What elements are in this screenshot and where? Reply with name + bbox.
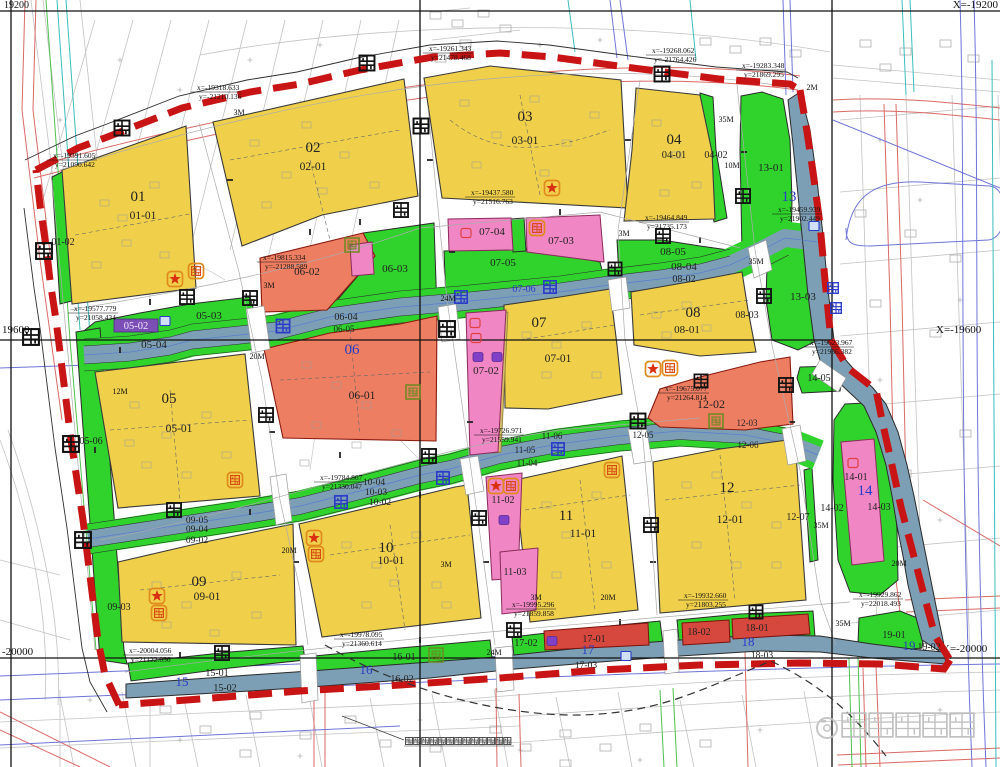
svg-text:x=-19815.334: x=-19815.334 — [263, 253, 306, 262]
svg-text:15: 15 — [176, 674, 189, 689]
svg-text:y=21264.814: y=21264.814 — [667, 393, 707, 402]
svg-text:x=-19577.779: x=-19577.779 — [74, 304, 117, 313]
svg-text:19-01: 19-01 — [882, 630, 905, 641]
svg-text:y=21859.858: y=21859.858 — [514, 609, 554, 618]
svg-text:05-03: 05-03 — [196, 310, 222, 322]
svg-text:08-02: 08-02 — [672, 274, 695, 285]
svg-text:03-01: 03-01 — [512, 135, 539, 147]
svg-text:09: 09 — [192, 574, 207, 590]
svg-text:15-02: 15-02 — [213, 683, 236, 694]
svg-text:x=-19932.660: x=-19932.660 — [684, 591, 727, 600]
svg-text:01: 01 — [131, 189, 146, 205]
svg-text:x=-20004.056: x=-20004.056 — [129, 646, 172, 655]
svg-text:02: 02 — [306, 140, 321, 156]
svg-text:06: 06 — [345, 342, 361, 358]
svg-text:y=-21764.426: y=-21764.426 — [654, 55, 697, 64]
svg-text:17-03: 17-03 — [575, 661, 597, 671]
svg-text:11-06: 11-06 — [542, 431, 563, 441]
svg-text:06-05: 06-05 — [334, 324, 355, 334]
svg-text:12-06: 12-06 — [738, 440, 759, 450]
svg-text:10-04: 10-04 — [363, 478, 385, 488]
svg-text:08-01: 08-01 — [674, 324, 700, 336]
svg-text:01-01: 01-01 — [130, 210, 157, 222]
svg-text:07-01: 07-01 — [545, 353, 572, 365]
svg-text:04: 04 — [667, 132, 683, 148]
svg-text:11-02: 11-02 — [492, 495, 515, 506]
svg-text:24M: 24M — [440, 294, 455, 303]
svg-text:11-01: 11-01 — [570, 528, 597, 540]
svg-text:09-03: 09-03 — [107, 602, 130, 613]
svg-text:y=21869.295: y=21869.295 — [744, 70, 784, 79]
svg-text:14-03: 14-03 — [867, 502, 890, 513]
svg-text:X=-19600: X=-19600 — [936, 324, 982, 336]
svg-text:18-02: 18-02 — [687, 627, 710, 638]
svg-text:07-05: 07-05 — [490, 257, 516, 269]
svg-text:y=21330.047: y=21330.047 — [322, 482, 362, 491]
svg-text:y=21516.763: y=21516.763 — [473, 197, 513, 206]
svg-text:3M: 3M — [440, 560, 451, 569]
svg-text:y=22018.493: y=22018.493 — [861, 599, 901, 608]
svg-text:19200: 19200 — [4, 0, 29, 11]
svg-text:09-04: 09-04 — [186, 525, 208, 535]
svg-text:17-01: 17-01 — [582, 634, 605, 645]
svg-text:3M: 3M — [233, 108, 244, 117]
svg-text:08-04: 08-04 — [671, 261, 697, 273]
svg-text:06-04: 06-04 — [334, 312, 357, 323]
svg-text:x=-19318.633: x=-19318.633 — [197, 83, 240, 92]
svg-text:x=-19929.862: x=-19929.862 — [859, 590, 902, 599]
svg-text:y=21936.382: y=21936.382 — [812, 347, 852, 356]
svg-text:24M: 24M — [486, 648, 501, 657]
svg-text:12-07: 12-07 — [786, 512, 809, 523]
svg-text:2M: 2M — [806, 83, 817, 92]
svg-text:10: 10 — [379, 540, 394, 556]
svg-text:y=21122.036: y=21122.036 — [131, 655, 171, 664]
svg-text:12M: 12M — [112, 387, 127, 396]
svg-text:12-01: 12-01 — [717, 514, 744, 526]
svg-text:3M: 3M — [530, 593, 541, 602]
svg-text:20M: 20M — [249, 352, 264, 361]
svg-text:10-03: 10-03 — [365, 488, 387, 498]
svg-text:18-03: 18-03 — [751, 651, 773, 661]
svg-text:y=21058.434: y=21058.434 — [76, 313, 116, 322]
svg-text:X=-19200: X=-19200 — [953, 0, 999, 11]
svg-text:06-01: 06-01 — [349, 390, 376, 402]
svg-text:y=-21288.589: y=-21288.589 — [265, 262, 308, 271]
svg-text:y=21559.941: y=21559.941 — [482, 435, 522, 444]
svg-text:19-02: 19-02 — [917, 642, 940, 653]
svg-text:35M: 35M — [813, 521, 828, 530]
svg-text:05: 05 — [162, 391, 177, 407]
svg-text:01-02: 01-02 — [51, 237, 74, 248]
svg-text:x=-19459.939: x=-19459.939 — [778, 205, 821, 214]
svg-text:x=-19784.867: x=-19784.867 — [320, 473, 363, 482]
svg-text:07-02: 07-02 — [473, 365, 499, 377]
svg-text:14-05: 14-05 — [807, 373, 830, 384]
svg-text:20M: 20M — [891, 559, 906, 568]
svg-text:11: 11 — [559, 508, 573, 524]
svg-text:06-03: 06-03 — [382, 263, 408, 275]
svg-text:20M: 20M — [600, 593, 615, 602]
svg-text:12-05: 12-05 — [633, 430, 654, 440]
svg-text:12: 12 — [720, 480, 735, 496]
svg-text:12-03: 12-03 — [737, 418, 758, 428]
svg-text:14-01: 14-01 — [844, 472, 867, 483]
svg-text:35M: 35M — [835, 619, 850, 628]
svg-text:08-05: 08-05 — [660, 246, 686, 258]
svg-text:05-02: 05-02 — [124, 321, 149, 332]
svg-text:-20000: -20000 — [2, 646, 34, 658]
svg-text:02-01: 02-01 — [300, 161, 327, 173]
svg-text:x=-19978.095: x=-19978.095 — [340, 630, 383, 639]
svg-text:x=-19675.077: x=-19675.077 — [665, 384, 708, 393]
svg-text:11-03: 11-03 — [504, 567, 527, 578]
svg-text:09-05: 09-05 — [186, 516, 208, 526]
svg-text:04-01: 04-01 — [662, 150, 687, 161]
svg-text:11-04: 11-04 — [517, 458, 538, 468]
svg-text:y=21902.449: y=21902.449 — [780, 214, 820, 223]
svg-text:18: 18 — [742, 634, 755, 649]
svg-text:x=-19464.849: x=-19464.849 — [645, 213, 688, 222]
svg-text:18-01: 18-01 — [745, 623, 768, 634]
svg-text:16-02: 16-02 — [390, 674, 413, 685]
svg-text:x=-19283.348: x=-19283.348 — [742, 61, 785, 70]
svg-text:x=-19261.343: x=-19261.343 — [429, 44, 472, 53]
svg-text:07-06: 07-06 — [512, 284, 535, 295]
svg-text:15-01: 15-01 — [205, 668, 228, 679]
svg-text:3M: 3M — [263, 281, 274, 290]
svg-text:x=-19623.967: x=-19623.967 — [810, 338, 853, 347]
svg-text:07-04: 07-04 — [479, 226, 505, 238]
svg-text:04-02: 04-02 — [704, 150, 727, 161]
svg-text:y=21090.642: y=21090.642 — [55, 160, 95, 169]
svg-text:13-03: 13-03 — [790, 291, 816, 303]
svg-text:35M: 35M — [718, 115, 733, 124]
svg-text:x=-19437.580: x=-19437.580 — [471, 188, 514, 197]
svg-text:10-01: 10-01 — [378, 555, 405, 567]
svg-text:14-02: 14-02 — [820, 503, 843, 514]
svg-text:3M: 3M — [618, 229, 629, 238]
svg-text:x=-19268.062: x=-19268.062 — [652, 46, 695, 55]
svg-text:14: 14 — [858, 483, 874, 499]
svg-text:y=21478.468: y=21478.468 — [431, 53, 471, 62]
svg-text:x=-19391.605: x=-19391.605 — [53, 151, 96, 160]
svg-text:35M: 35M — [748, 257, 763, 266]
svg-text:y=21735.173: y=21735.173 — [647, 222, 687, 231]
svg-text:y=21803.255: y=21803.255 — [686, 600, 726, 609]
svg-text:07-03: 07-03 — [548, 235, 574, 247]
svg-text:16: 16 — [360, 662, 374, 677]
svg-text:05-06: 05-06 — [79, 436, 102, 447]
svg-text:10M: 10M — [724, 161, 739, 170]
svg-text:09-01: 09-01 — [194, 591, 221, 603]
svg-text:13-01: 13-01 — [758, 162, 784, 174]
svg-text:y=21360.614: y=21360.614 — [342, 639, 382, 648]
svg-text:16-01: 16-01 — [392, 652, 415, 663]
svg-text:10-02: 10-02 — [369, 498, 391, 508]
svg-text:07: 07 — [532, 315, 548, 331]
svg-text:03: 03 — [518, 109, 533, 125]
svg-text:y=-21210.136: y=-21210.136 — [199, 92, 242, 101]
svg-text:11-05: 11-05 — [515, 445, 536, 455]
svg-text:08: 08 — [686, 305, 701, 321]
svg-text:20M: 20M — [281, 546, 296, 555]
svg-text:13: 13 — [782, 189, 797, 205]
svg-text:17-02: 17-02 — [514, 638, 537, 649]
svg-text:x=-19726.971: x=-19726.971 — [480, 426, 523, 435]
svg-text:05-01: 05-01 — [166, 423, 193, 435]
svg-text:09-02: 09-02 — [186, 536, 208, 546]
svg-text:05-04: 05-04 — [141, 339, 167, 351]
svg-text:08-03: 08-03 — [735, 310, 758, 321]
